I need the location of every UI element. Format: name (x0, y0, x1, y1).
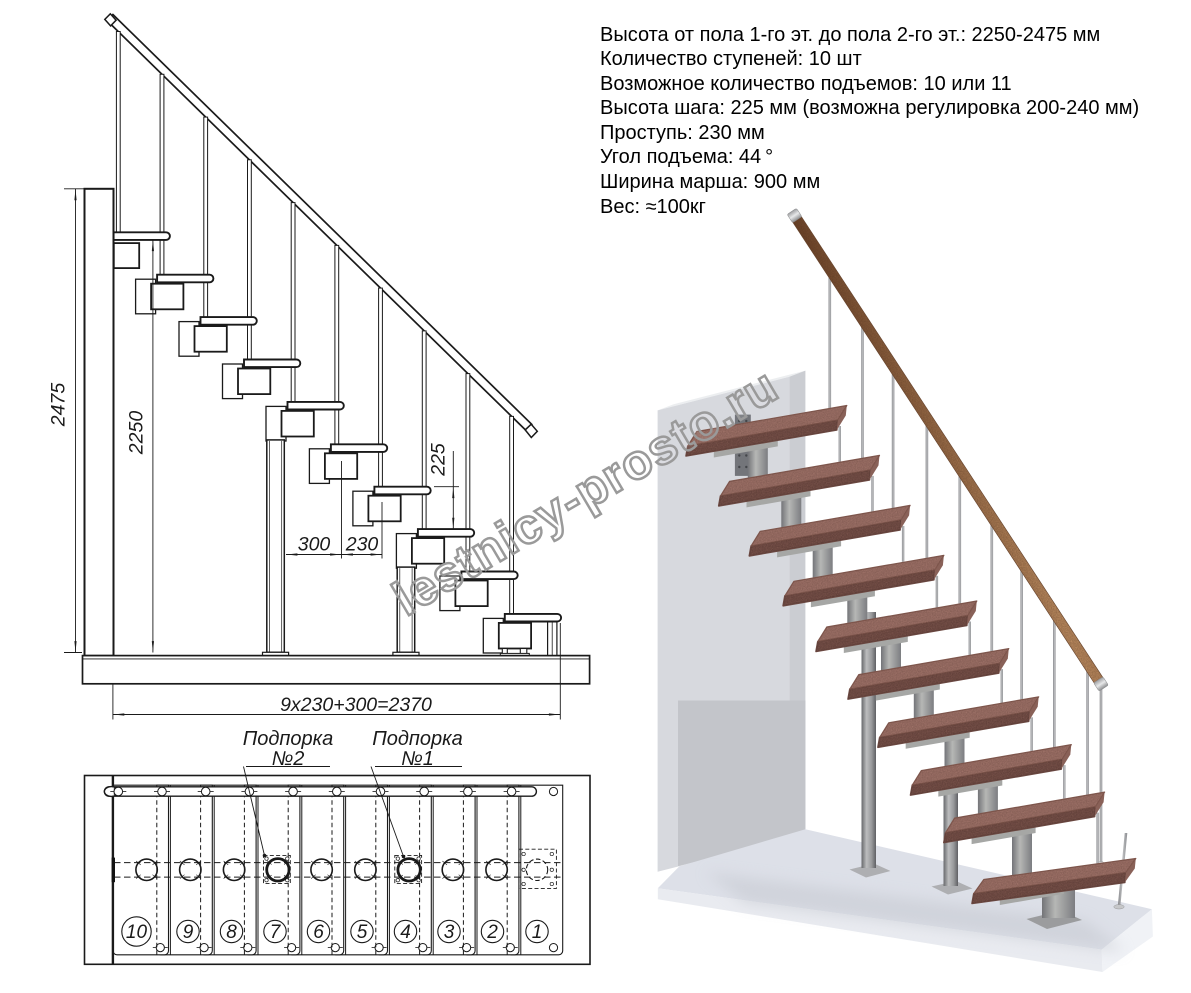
svg-text:2475: 2475 (48, 383, 70, 428)
svg-text:8: 8 (226, 922, 237, 943)
svg-text:2: 2 (486, 922, 498, 943)
svg-text:225: 225 (428, 443, 450, 477)
svg-text:4: 4 (400, 922, 411, 943)
svg-text:300: 300 (298, 534, 331, 556)
svg-text:7: 7 (270, 922, 282, 943)
svg-text:1: 1 (532, 922, 543, 943)
svg-text:9x230+300=2370: 9x230+300=2370 (280, 694, 432, 716)
svg-text:Подпорка: Подпорка (243, 728, 334, 750)
svg-text:9: 9 (183, 922, 194, 943)
svg-text:3: 3 (444, 922, 455, 943)
svg-text:10: 10 (126, 922, 148, 943)
svg-text:Подпорка: Подпорка (372, 728, 463, 750)
svg-text:6: 6 (313, 922, 324, 943)
svg-text:2250: 2250 (126, 411, 148, 456)
svg-text:230: 230 (345, 534, 379, 556)
svg-text:5: 5 (357, 922, 368, 943)
